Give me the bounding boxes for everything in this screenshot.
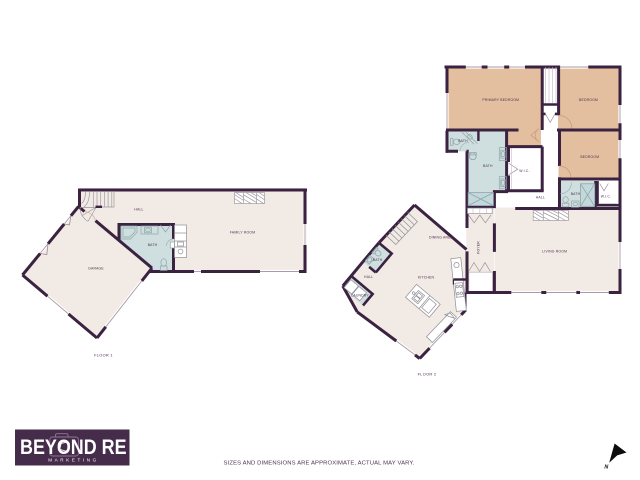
svg-text:LIVING ROOM: LIVING ROOM [542,250,567,254]
svg-text:N: N [604,464,608,470]
svg-text:BATH: BATH [373,258,383,262]
svg-text:BATH: BATH [458,139,468,143]
svg-text:BEYOND RE: BEYOND RE [20,436,127,459]
svg-text:GARAGE: GARAGE [88,267,104,271]
svg-text:BEDROOM: BEDROOM [580,155,599,159]
svg-text:FLOOR 1: FLOOR 1 [94,353,113,358]
svg-text:HALL: HALL [134,208,143,212]
svg-text:W.I.C.: W.I.C. [519,169,529,173]
svg-text:FAMILY ROOM: FAMILY ROOM [230,231,255,235]
svg-text:BATH: BATH [571,192,581,196]
svg-text:HALL: HALL [536,196,545,200]
svg-text:FOYER: FOYER [477,241,481,254]
svg-text:BATH: BATH [483,164,493,168]
svg-text:PRIMARY BEDROOM: PRIMARY BEDROOM [482,98,519,102]
svg-text:DINING AREA: DINING AREA [429,236,454,240]
svg-text:HALL: HALL [364,275,373,279]
svg-text:LAUNDRY: LAUNDRY [351,294,369,298]
svg-text:FLOOR 2: FLOOR 2 [418,372,437,377]
svg-text:W.I.C.: W.I.C. [601,195,611,199]
svg-text:BATH: BATH [148,243,158,247]
svg-text:BEDROOM: BEDROOM [579,98,598,102]
svg-text:KITCHEN: KITCHEN [418,276,435,280]
svg-text:MARKETING: MARKETING [48,457,99,463]
svg-text:SIZES AND DIMENSIONS ARE APPRO: SIZES AND DIMENSIONS ARE APPROXIMATE, AC… [224,461,415,467]
